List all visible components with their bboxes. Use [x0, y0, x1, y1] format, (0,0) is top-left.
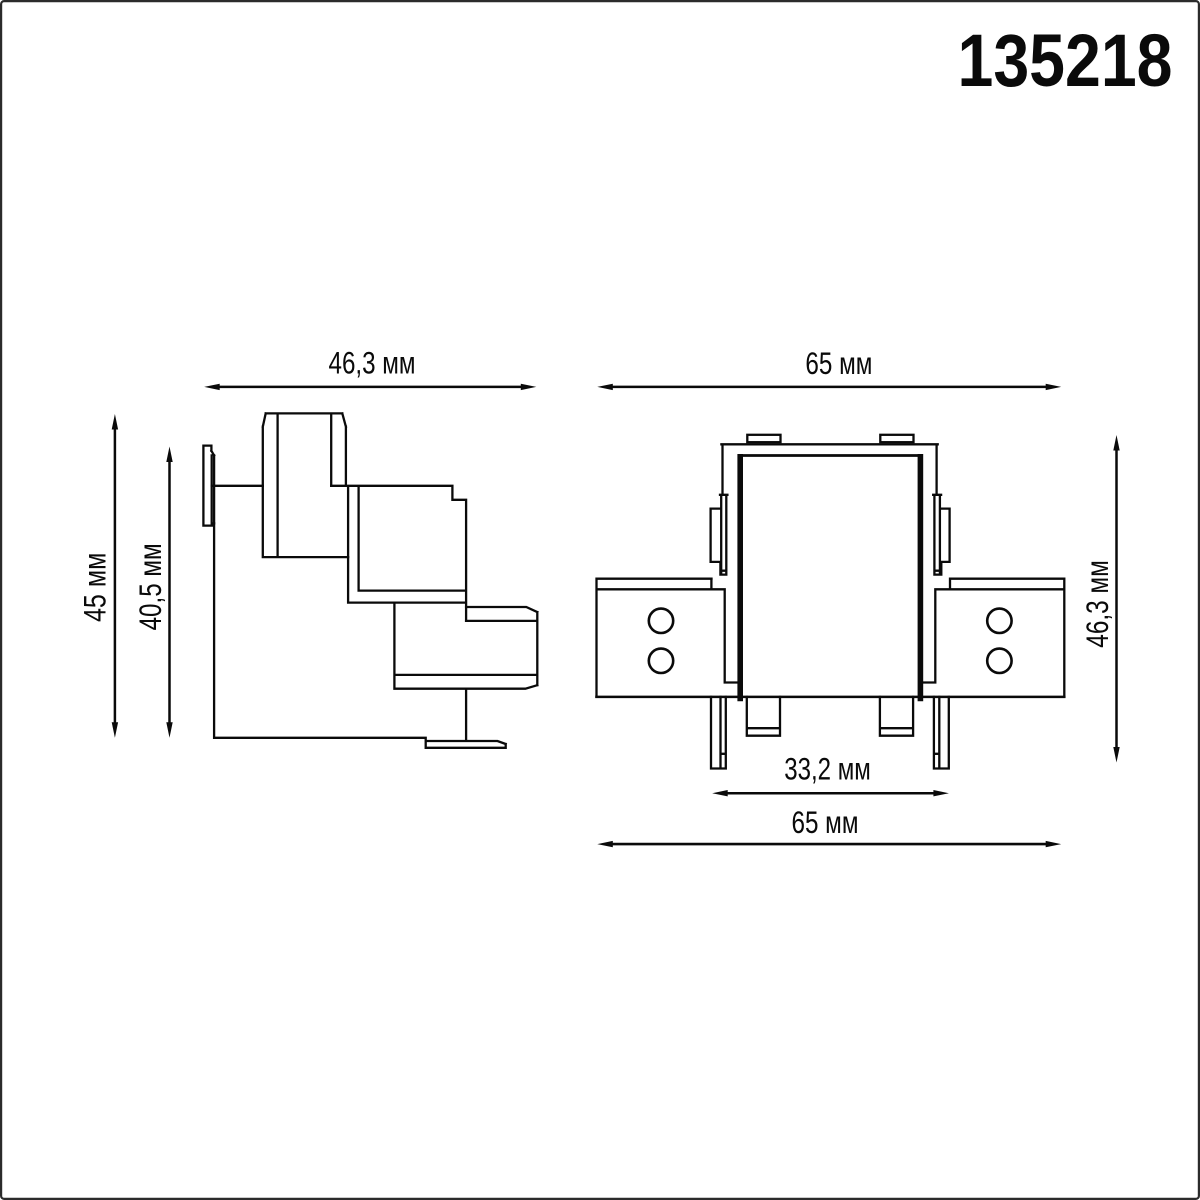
svg-text:40,5 мм: 40,5 мм: [133, 543, 168, 630]
svg-text:65 мм: 65 мм: [805, 346, 872, 381]
svg-text:135218: 135218: [958, 19, 1173, 102]
svg-text:33,2 мм: 33,2 мм: [784, 752, 871, 787]
svg-text:46,3 мм: 46,3 мм: [1080, 560, 1115, 648]
svg-text:65 мм: 65 мм: [792, 805, 859, 840]
svg-text:45 мм: 45 мм: [78, 553, 113, 623]
svg-text:46,3 мм: 46,3 мм: [329, 346, 416, 381]
